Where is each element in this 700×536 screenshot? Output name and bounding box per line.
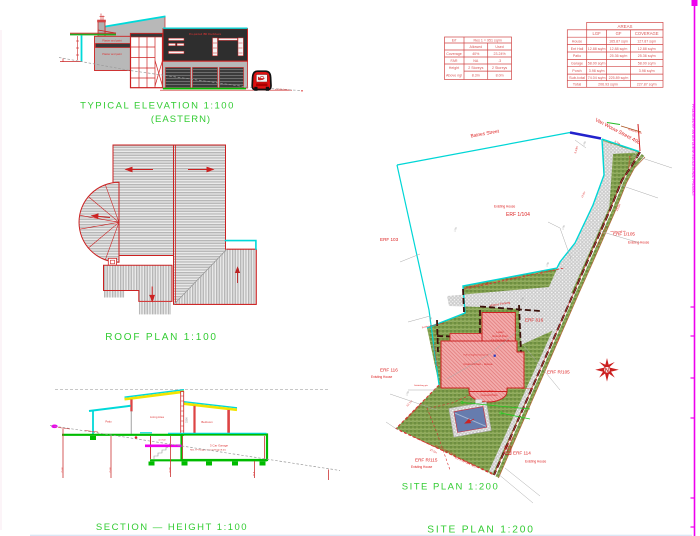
svg-text:Used: Used xyxy=(495,45,503,49)
svg-text:Garage: Garage xyxy=(571,62,583,66)
svg-text:existing wall left: existing wall left xyxy=(610,230,626,233)
svg-text:58.00 sq/m: 58.00 sq/m xyxy=(588,62,606,66)
svg-text:Ground Floor: Ground Floor xyxy=(492,334,508,338)
svg-text:House: House xyxy=(572,39,582,43)
svg-text:ERF 1/104: ERF 1/104 xyxy=(506,212,530,218)
svg-text:Plaster and paint: Plaster and paint xyxy=(102,39,122,43)
svg-text:Res 1 = 951 sq/m: Res 1 = 951 sq/m xyxy=(474,39,502,43)
svg-text:ERF 616: ERF 616 xyxy=(525,318,544,323)
svg-text:ERF R/115: ERF R/115 xyxy=(415,458,438,463)
svg-text:Ent Hall: Ent Hall xyxy=(571,47,584,51)
svg-text:LGF: LGF xyxy=(593,31,602,36)
svg-text:Sehdsking pts: Sehdsking pts xyxy=(414,384,429,387)
svg-text:3300: 3300 xyxy=(185,417,189,423)
svg-text:75.86: 75.86 xyxy=(62,466,64,472)
svg-text:227.87 sq/m: 227.87 sq/m xyxy=(637,83,657,87)
svg-text:Covered Patio: Covered Patio xyxy=(480,393,498,397)
svg-text:3.98 sq/m: 3.98 sq/m xyxy=(639,69,655,73)
svg-text:Sub-total: Sub-total xyxy=(569,75,585,80)
svg-text:SITE PLAN 1:200: SITE PLAN 1:200 xyxy=(402,482,499,493)
svg-text:ERF R/105: ERF R/105 xyxy=(547,370,570,375)
svg-text:12.88 sq/m: 12.88 sq/m xyxy=(610,47,628,51)
svg-text:75.86: 75.86 xyxy=(110,466,112,472)
svg-text:25.36 sq/m: 25.36 sq/m xyxy=(610,54,628,58)
svg-text:Height: Height xyxy=(449,66,459,70)
svg-text:225.89 sq/m: 225.89 sq/m xyxy=(609,76,629,80)
svg-text:Pre-painted IBR Roofsheets: Pre-painted IBR Roofsheets xyxy=(189,32,222,36)
svg-text:ERF 116: ERF 116 xyxy=(380,368,398,373)
svg-text:Living Area: Living Area xyxy=(150,415,164,419)
svg-text:Allowed: Allowed xyxy=(470,45,483,49)
svg-text:Patio: Patio xyxy=(105,420,112,424)
svg-text:ent hall: ent hall xyxy=(158,439,166,442)
svg-text:Ground Floor - House: Ground Floor - House xyxy=(463,362,492,366)
svg-text:2 Storeys: 2 Storeys xyxy=(492,66,507,70)
svg-text:Existing House: Existing House xyxy=(494,205,515,209)
svg-text:8.0m: 8.0m xyxy=(496,74,504,78)
svg-text:ERF 103: ERF 103 xyxy=(380,237,399,242)
svg-text:.3: .3 xyxy=(498,59,501,63)
svg-text:3.98 sq/m: 3.98 sq/m xyxy=(589,69,605,73)
svg-text:Above ngl: Above ngl xyxy=(446,74,462,78)
svg-text:8.3m: 8.3m xyxy=(472,74,480,78)
svg-text:Coverage: Coverage xyxy=(446,52,462,56)
svg-text:e d NGL lines e: e d NGL lines e xyxy=(275,89,290,91)
svg-text:GroundFloor -: GroundFloor - xyxy=(481,389,498,393)
svg-text:Bedroom: Bedroom xyxy=(201,420,213,424)
svg-text:ERF 114: ERF 114 xyxy=(513,451,531,456)
svg-text:Bulshing pts: Bulshing pts xyxy=(521,387,534,390)
svg-text:ROOF PLAN 1:100: ROOF PLAN 1:100 xyxy=(105,332,218,343)
svg-text:2 Storeys: 2 Storeys xyxy=(468,66,483,70)
svg-text:(EASTERN): (EASTERN) xyxy=(151,114,211,125)
svg-text:PRODUCED BY AN AUTODESK EDUCAT: PRODUCED BY AN AUTODESK EDUCATIONAL PROD… xyxy=(691,104,695,196)
svg-text:AREAS: AREAS xyxy=(618,24,633,29)
svg-text:Porch: Porch xyxy=(572,69,581,73)
svg-text:COVERAGE: COVERAGE xyxy=(635,31,659,36)
svg-text:74.04 sq/m: 74.04 sq/m xyxy=(588,76,606,80)
svg-text:12.88 sq/m: 12.88 sq/m xyxy=(588,47,606,51)
svg-text:FAR: FAR xyxy=(451,59,458,63)
svg-text:58.00 sq/m: 58.00 sq/m xyxy=(638,62,656,66)
svg-text:206.93 sq/m: 206.93 sq/m xyxy=(598,83,618,87)
svg-text:Existing House: Existing House xyxy=(411,465,432,469)
svg-text:TYPICAL ELEVATION 1:100: TYPICAL ELEVATION 1:100 xyxy=(80,101,235,112)
svg-text:N: N xyxy=(605,368,609,374)
svg-text:SECTION — HEIGHT 1:100: SECTION — HEIGHT 1:100 xyxy=(96,522,248,533)
svg-text:Existing House: Existing House xyxy=(371,375,392,379)
svg-text:SITE PLAN 1:200: SITE PLAN 1:200 xyxy=(427,525,534,536)
svg-text:12.88 sq/m: 12.88 sq/m xyxy=(638,47,656,51)
svg-text:GF: GF xyxy=(616,31,622,36)
svg-text:Lower: Lower xyxy=(496,330,503,334)
svg-text:Plaster and paint: Plaster and paint xyxy=(102,52,122,56)
svg-text:3 Car Garage: 3 Car Garage xyxy=(210,444,229,448)
svg-text:75.86: 75.86 xyxy=(170,466,172,472)
svg-text:40%: 40% xyxy=(472,52,480,56)
svg-text:165.87 sqm: 165.87 sqm xyxy=(609,39,628,43)
svg-text:Path of height Dimension dn: Path of height Dimension dn xyxy=(463,354,488,357)
svg-text:Total: Total xyxy=(573,82,582,87)
svg-text:Patio: Patio xyxy=(573,54,581,58)
svg-text:Erf: Erf xyxy=(452,39,457,43)
svg-text:25.36 sq/m: 25.36 sq/m xyxy=(638,54,656,58)
svg-text:Existing House: Existing House xyxy=(525,460,546,464)
svg-text:23.24%: 23.24% xyxy=(493,52,506,56)
svg-text:NA: NA xyxy=(473,59,479,63)
svg-text:127.87 sqm: 127.87 sqm xyxy=(637,39,656,43)
